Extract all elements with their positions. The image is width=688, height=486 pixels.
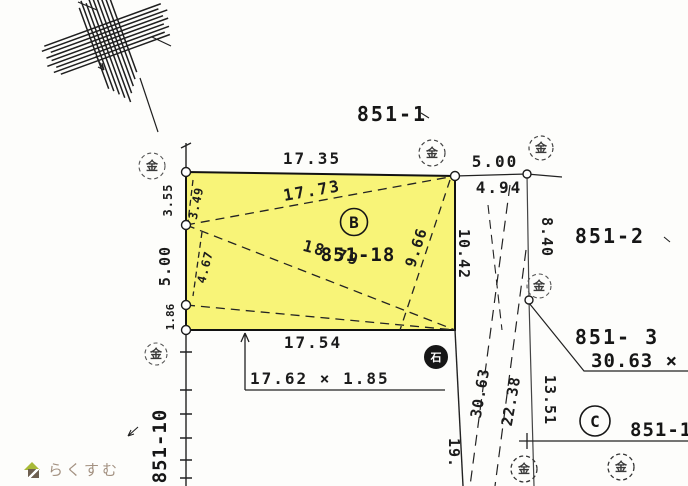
dim-right-offset: 8.40 <box>538 217 556 257</box>
node-offset-top <box>523 170 531 178</box>
dash-inner-offset <box>488 205 502 330</box>
boundary-stone-marker: 石 <box>425 346 448 369</box>
node-top-left <box>182 168 191 177</box>
dim-upper-right-out: 5.00 <box>472 152 519 171</box>
label-parcel-851-10: 851-10 <box>149 409 171 484</box>
dim-dash-line-long: 30.63 <box>467 367 493 420</box>
dash-30-63 <box>470 185 510 486</box>
survey-marker: 金 <box>529 136 553 160</box>
road-tail-line <box>140 78 158 132</box>
node-top-right <box>451 172 460 181</box>
left-boundary-lower <box>180 330 192 486</box>
node-bottom-left <box>182 326 191 335</box>
survey-drawing: 金 金 金 金 金 金 金 <box>0 0 688 486</box>
dim-top-edge: 17.35 <box>283 149 341 168</box>
survey-marker: 金 <box>608 454 634 480</box>
node-left-upper <box>182 221 191 230</box>
cadastral-survey-map: 金 金 金 金 金 金 金 <box>0 0 688 486</box>
road-hatch-band-vertical <box>77 0 146 107</box>
dim-left-bottom: 1.86 <box>164 303 177 330</box>
dash-22-38 <box>495 250 526 486</box>
label-parcel-851-19: 851-19 <box>630 419 688 441</box>
dim-bottom-partial: 19. <box>445 438 463 468</box>
right-offset-line <box>527 174 534 486</box>
metal-marker-icon: 金 <box>534 140 548 155</box>
parcel-c-letter: C <box>590 412 600 431</box>
dim-left-mid: 5.00 <box>156 246 174 286</box>
dim-bottom-edge: 17.54 <box>284 333 342 352</box>
node-left-mid <box>182 301 191 310</box>
node-offset-mid <box>525 296 533 304</box>
metal-marker-icon: 金 <box>614 459 628 474</box>
house-body-icon <box>28 469 39 478</box>
dim-dash-line-short: 22.38 <box>498 375 524 428</box>
house-icon <box>24 462 42 478</box>
survey-marker: 金 <box>419 140 445 166</box>
dim-right-edge: 10.42 <box>455 229 473 279</box>
top-right-tie-line <box>455 174 562 177</box>
survey-marker: 金 <box>527 274 551 298</box>
parcel-b-letter: B <box>349 213 359 232</box>
survey-marker: 金 <box>145 343 167 365</box>
metal-marker-icon: 金 <box>145 158 159 173</box>
dim-bottom-strip: 17.62 × 1.85 <box>250 369 390 388</box>
metal-marker-icon: 金 <box>517 461 531 476</box>
stone-marker-icon: 石 <box>430 351 442 364</box>
metal-marker-icon: 金 <box>532 278 546 293</box>
watermark-brand-text: らくすむ <box>48 459 120 480</box>
label-parcel-851-1: 851-1 <box>357 102 427 126</box>
rakusumu-watermark: らくすむ <box>24 459 120 480</box>
label-parcel-851-3: 851- 3 <box>575 325 659 349</box>
metal-marker-icon: 金 <box>149 346 163 361</box>
label-parcel-851-3-size: 30.63 × 1. <box>591 350 688 372</box>
label-parcel-851-2: 851-2 <box>575 224 645 248</box>
dim-upper-right-in: 4.94 <box>476 178 523 197</box>
dim-right-lower-seg: 13.51 <box>541 375 559 425</box>
dim-left-top: 3.55 <box>161 184 175 217</box>
metal-marker-icon: 金 <box>425 145 439 160</box>
road-hatching <box>30 0 193 132</box>
survey-marker: 金 <box>139 153 165 179</box>
